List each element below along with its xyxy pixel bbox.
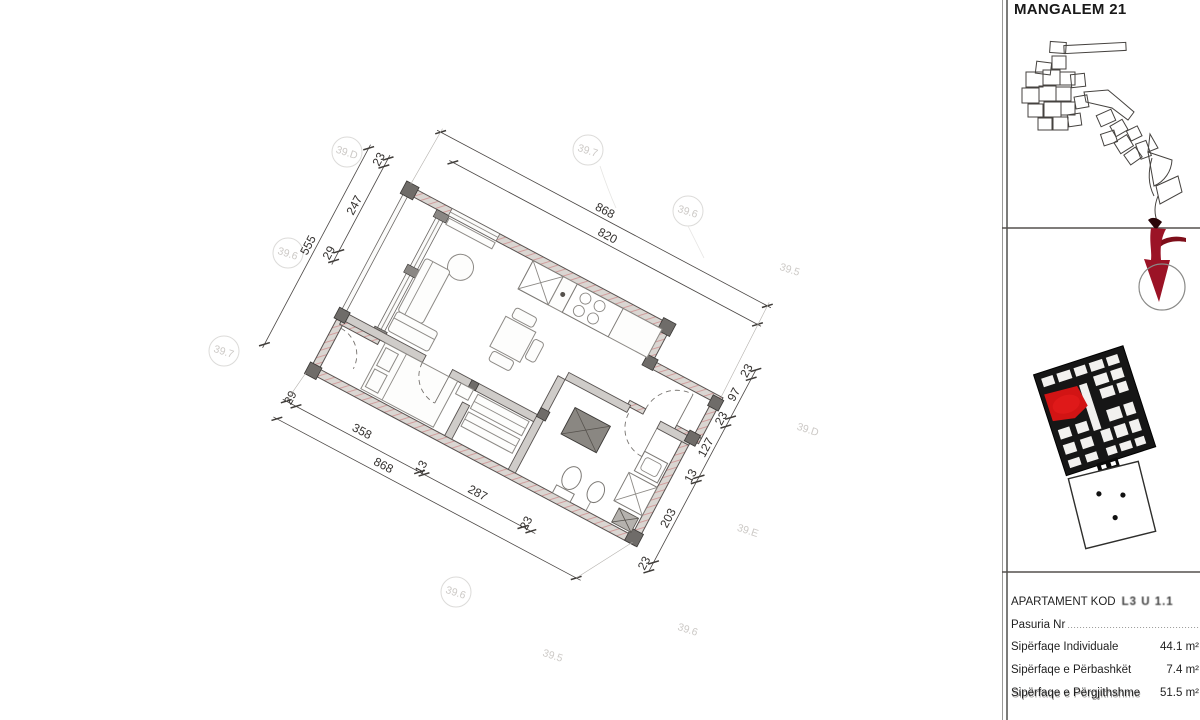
dim-right-7: 23 <box>635 554 654 573</box>
area-value: 7.4 m² <box>1166 664 1199 676</box>
dining-table <box>484 305 554 380</box>
dim-left-3: 29 <box>320 243 339 262</box>
pasuria-row: Pasuria Nr .............................… <box>1011 619 1199 639</box>
apartment-code-row: APARTAMENT KOD L3 U 1.1 <box>1011 596 1199 616</box>
dim-bottom-5: 23 <box>517 514 536 533</box>
dim-bottom-1: 29 <box>281 388 300 407</box>
bathroom-door-arc <box>614 413 657 456</box>
grid-bubble-label: 39.6 <box>676 621 699 639</box>
area-value: 44.1 m² <box>1160 641 1199 653</box>
project-title: MANGALEM 21 <box>1014 1 1126 18</box>
apartment-plan: 868 820 555 23 247 29 29 358 13 28 <box>221 86 795 612</box>
drawing-sheet: 39.D 39.7 39.6 39.5 39.6 39.7 39.D 39.E … <box>0 0 1200 720</box>
area-row: Sipërfaqe e Përgjithshme 51.5 m² <box>1011 687 1199 707</box>
adjacent-block <box>1068 461 1155 548</box>
floor-plan: 39.D 39.7 39.6 39.5 39.6 39.7 39.D 39.E … <box>0 0 1002 720</box>
service-shaft <box>561 407 610 452</box>
bed <box>361 343 458 427</box>
area-label: Sipërfaqe Individuale <box>1011 641 1118 653</box>
area-value: 51.5 m² <box>1160 687 1199 699</box>
grid-bubble-label: 39.6 <box>676 203 699 221</box>
area-label: Sipërfaqe e Përbashkët <box>1011 664 1131 676</box>
wardrobe <box>461 394 529 453</box>
grid-bubble-label: 39.6 <box>276 245 299 263</box>
grid-bubble-label: 39.7 <box>576 142 599 160</box>
site-plan-sketch <box>1022 41 1182 224</box>
grid-bubble-label: 39.5 <box>778 261 801 279</box>
area-row: Sipërfaqe e Përbashkët 7.4 m² <box>1011 664 1199 684</box>
grid-bubble-label: 39.D <box>795 421 820 439</box>
grid-bubble-label: 39.5 <box>541 647 564 665</box>
grid-bubble-label: 39.6 <box>444 584 467 602</box>
dim-left-2: 247 <box>343 193 365 218</box>
dim-right-6: 203 <box>657 506 679 531</box>
dim-bottom-4: 287 <box>466 482 491 504</box>
pasuria-label: Pasuria Nr <box>1011 619 1065 631</box>
dim-right-1: 23 <box>737 361 756 380</box>
area-row: Sipërfaqe Individuale 44.1 m² <box>1011 641 1199 661</box>
building-key-plan <box>1034 346 1160 549</box>
grid-bubble-label: 39.D <box>334 144 359 162</box>
pasuria-dotted-leader: ........................................… <box>1067 620 1199 630</box>
apartment-code-value: L3 U 1.1 <box>1122 596 1174 608</box>
dim-left-outer: 555 <box>297 233 319 258</box>
info-panel: MANGALEM 21 APARTAMENT KOD L3 U 1.1 Pasu… <box>1002 0 1200 720</box>
dim-top-inner: 820 <box>595 225 620 247</box>
structural-columns <box>304 181 745 553</box>
dim-right-2: 97 <box>724 385 743 404</box>
dim-bottom-2: 358 <box>350 420 375 442</box>
grid-bubble-label: 39.E <box>736 522 760 540</box>
apartment-code-label: APARTAMENT KOD <box>1011 596 1116 608</box>
grid-bubble-label: 39.7 <box>212 343 235 361</box>
round-table <box>443 250 478 285</box>
location-arrow <box>1139 218 1186 310</box>
area-label: Sipërfaqe e Përgjithshme <box>1011 687 1140 699</box>
